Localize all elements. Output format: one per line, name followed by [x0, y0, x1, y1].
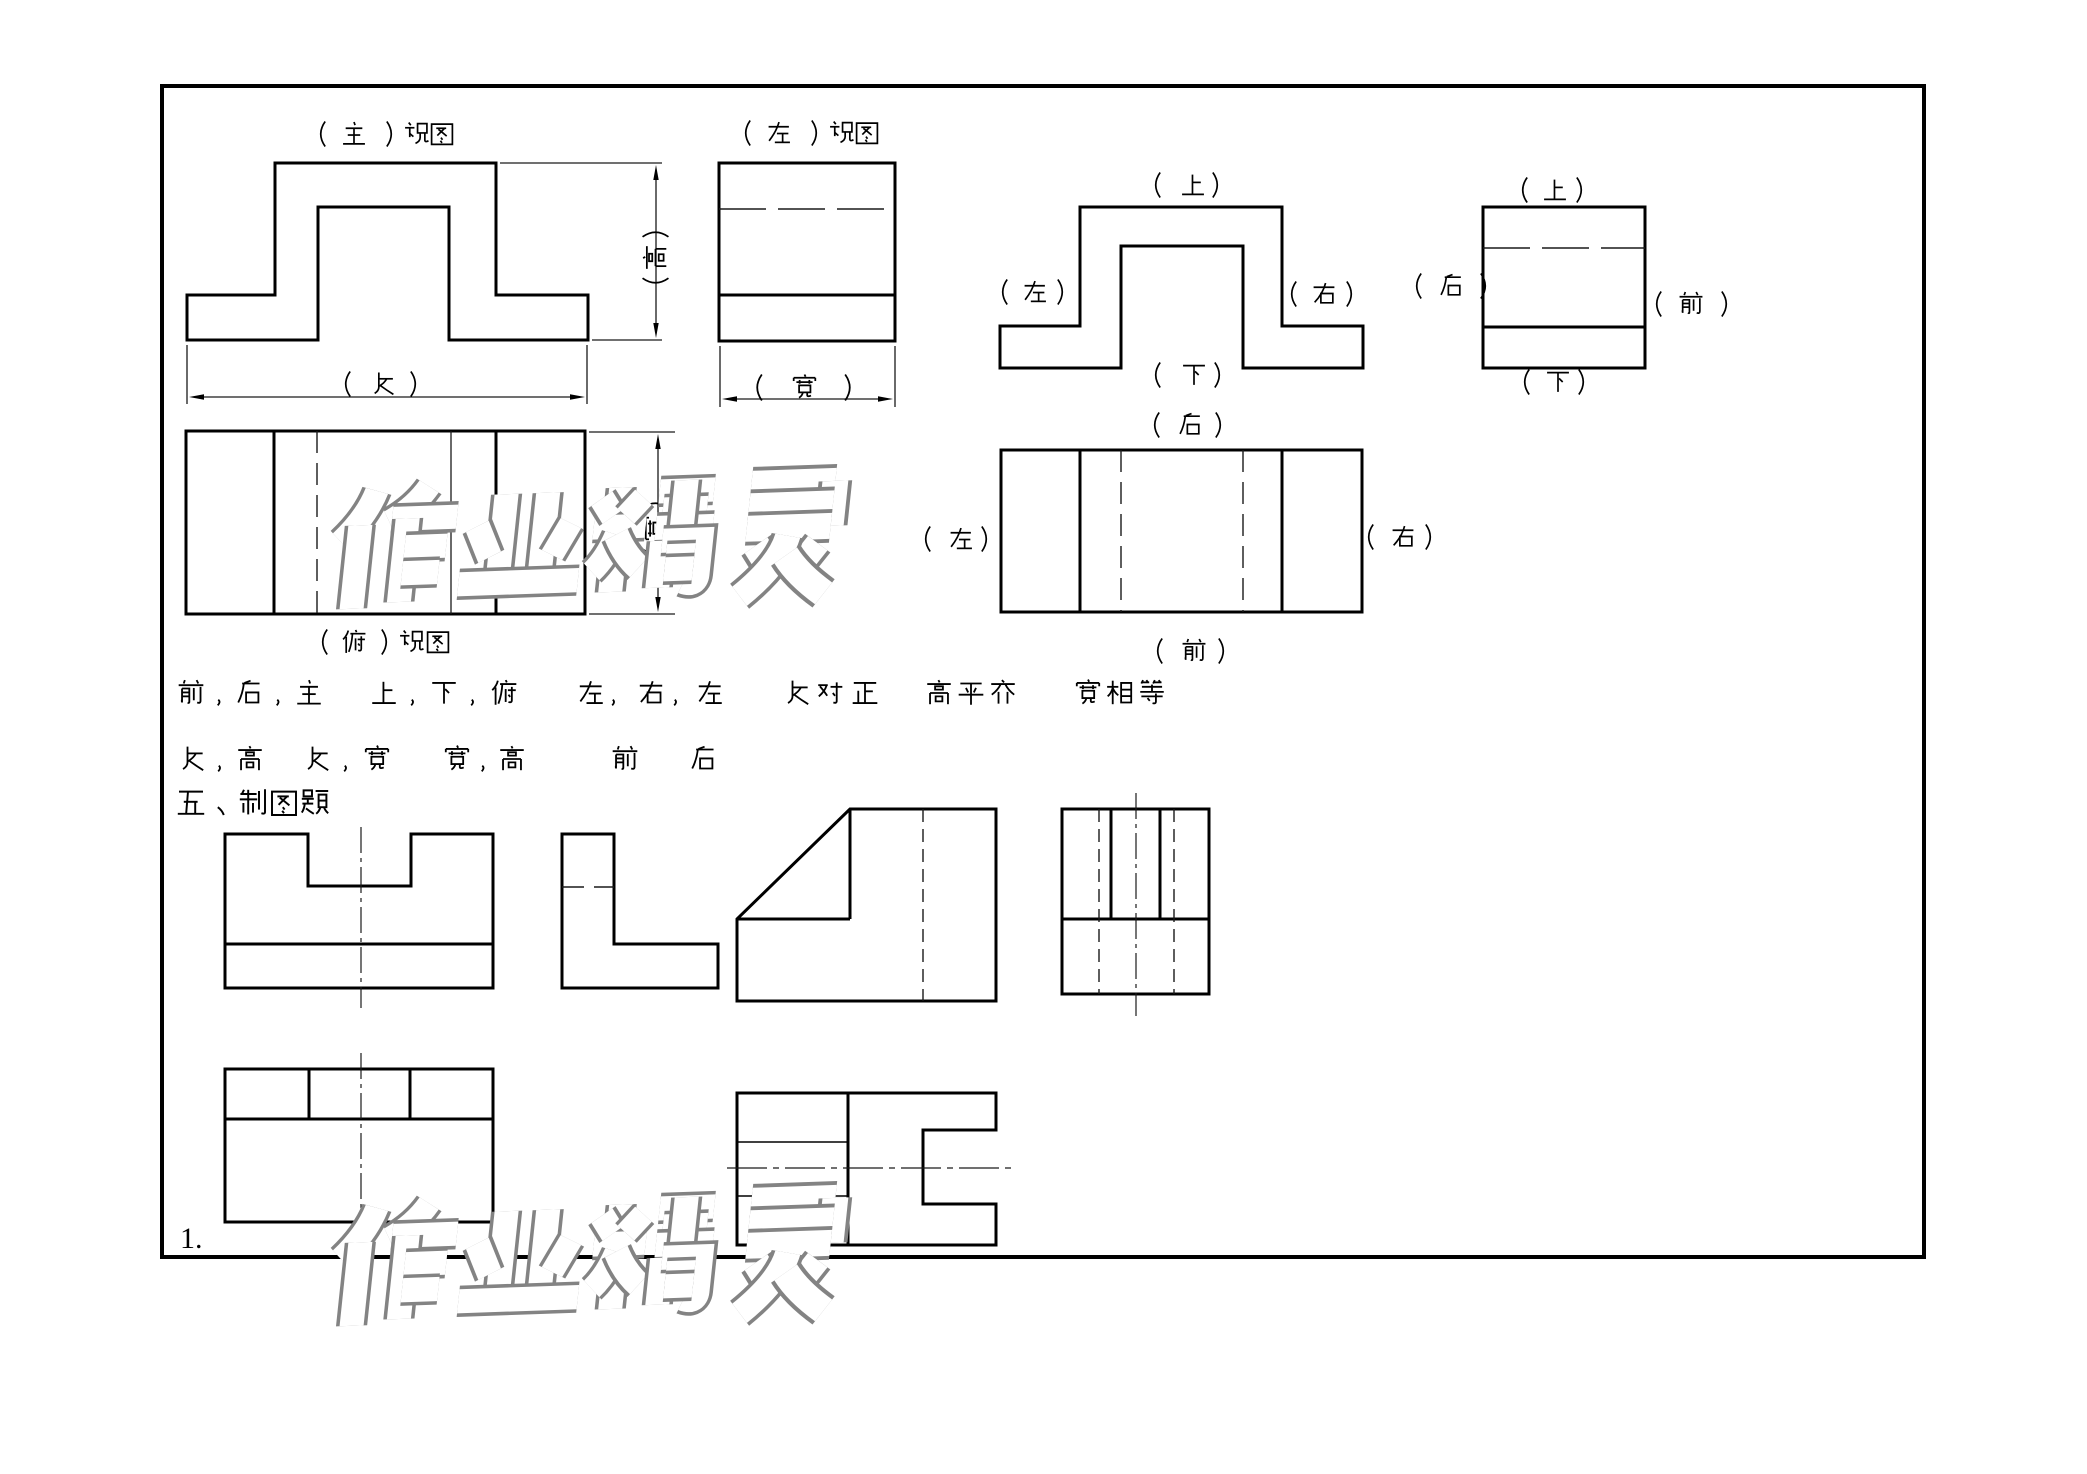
svg-text:1.: 1.	[180, 1222, 203, 1255]
